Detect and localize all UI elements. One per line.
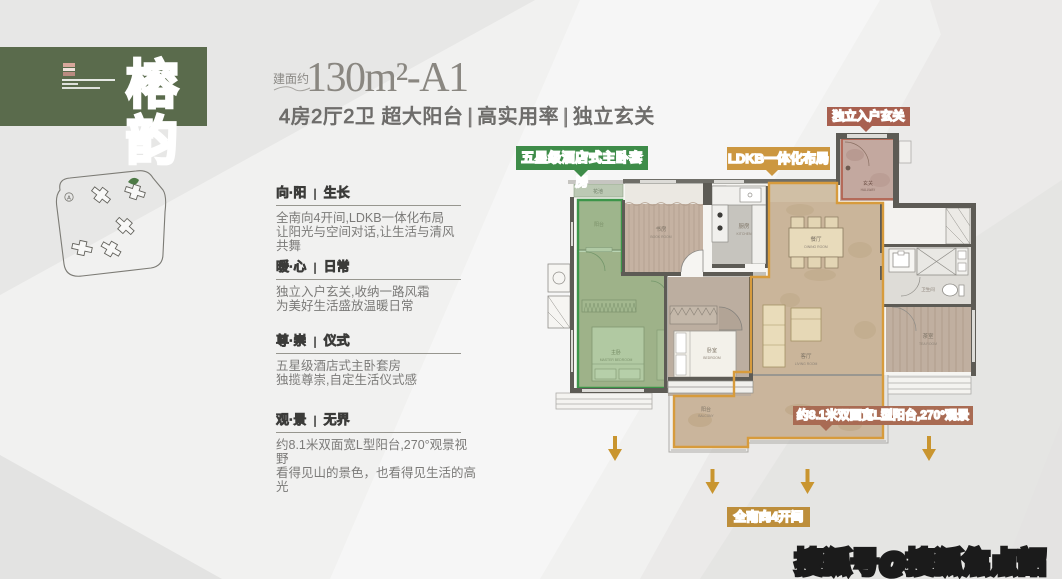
svg-text:卧室: 卧室	[707, 347, 717, 354]
svg-text:茶室: 茶室	[922, 332, 934, 340]
svg-text:书房: 书房	[655, 225, 667, 233]
svg-text:玄关: 玄关	[863, 180, 873, 187]
svg-text:餐厅: 餐厅	[810, 235, 822, 243]
svg-text:阳台: 阳台	[701, 406, 711, 413]
svg-text:HALLWAY: HALLWAY	[861, 188, 877, 192]
svg-text:卫生间: 卫生间	[921, 286, 935, 293]
svg-text:KITCHEN: KITCHEN	[737, 232, 752, 236]
svg-text:TEA ROOM: TEA ROOM	[919, 342, 937, 346]
svg-text:厨房: 厨房	[738, 222, 750, 230]
svg-text:花池: 花池	[593, 188, 603, 195]
svg-text:DINING ROOM: DINING ROOM	[804, 245, 828, 249]
svg-text:客厅: 客厅	[800, 352, 812, 360]
svg-text:BALCONY: BALCONY	[698, 414, 714, 418]
svg-text:LIVING ROOM: LIVING ROOM	[795, 362, 818, 366]
svg-text:BEDROOM: BEDROOM	[703, 356, 721, 360]
svg-text:BOOK ROOM: BOOK ROOM	[650, 235, 671, 239]
